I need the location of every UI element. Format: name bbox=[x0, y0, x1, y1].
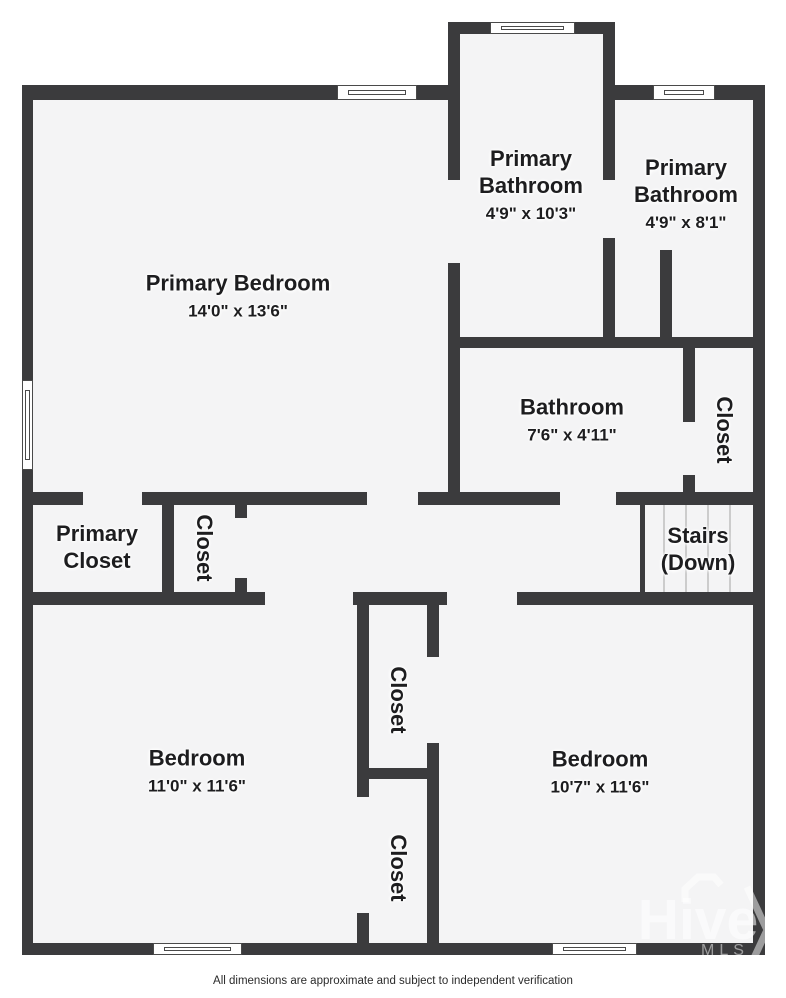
room-label-closet-middle-top: Closet bbox=[385, 666, 411, 733]
window-glass bbox=[664, 90, 704, 95]
room-dims: 14'0" x 13'6" bbox=[146, 300, 331, 321]
wall-segment bbox=[640, 505, 645, 592]
wall-segment bbox=[753, 85, 765, 955]
room-name: Primary Bathroom bbox=[466, 146, 596, 200]
window-symbol bbox=[153, 943, 242, 955]
room-name: Stairs (Down) bbox=[656, 523, 740, 577]
room-dims: 7'6" x 4'11" bbox=[520, 424, 624, 445]
wall-segment bbox=[22, 492, 83, 505]
disclaimer-text: All dimensions are approximate and subje… bbox=[0, 975, 786, 987]
watermark-sub-text: MLS bbox=[701, 942, 749, 959]
room-name: Primary Bathroom bbox=[621, 155, 751, 209]
wall-segment bbox=[22, 85, 33, 380]
wall-segment bbox=[418, 492, 560, 505]
room-label-bedroom-left: Bedroom 11'0" x 11'6" bbox=[148, 745, 246, 796]
room-label-closet-bathroom-side: Closet bbox=[711, 396, 737, 463]
room-label-closet-hallway: Closet bbox=[191, 514, 217, 581]
window-glass bbox=[501, 26, 564, 30]
room-dims: 10'7" x 11'6" bbox=[551, 776, 650, 797]
wall-segment bbox=[142, 492, 367, 505]
wall-segment bbox=[683, 348, 695, 422]
room-label-primary-bathroom-1: Primary Bathroom 4'9" x 10'3" bbox=[466, 146, 596, 224]
window-glass bbox=[348, 90, 406, 95]
wall-segment bbox=[353, 592, 447, 605]
wall-segment bbox=[22, 943, 153, 955]
wall-segment bbox=[448, 337, 765, 348]
room-label-bathroom: Bathroom 7'6" x 4'11" bbox=[520, 394, 624, 445]
wall-segment bbox=[616, 492, 765, 505]
room-name: Primary Closet bbox=[40, 521, 155, 575]
wall-segment bbox=[235, 578, 247, 592]
room-label-stairs: Stairs (Down) bbox=[656, 523, 740, 577]
wall-segment bbox=[448, 263, 460, 505]
room-name: Bedroom bbox=[551, 746, 650, 773]
window-symbol bbox=[490, 22, 575, 34]
wall-segment bbox=[427, 605, 439, 657]
window-symbol bbox=[653, 85, 715, 100]
room-dims: 11'0" x 11'6" bbox=[148, 775, 246, 796]
wall-segment bbox=[660, 250, 672, 348]
wall-segment bbox=[242, 943, 552, 955]
wall-segment bbox=[603, 22, 615, 180]
window-glass bbox=[164, 947, 231, 951]
window-symbol bbox=[337, 85, 417, 100]
room-label-primary-bedroom: Primary Bedroom 14'0" x 13'6" bbox=[146, 270, 331, 321]
wall-segment bbox=[22, 85, 337, 100]
room-name: Primary Bedroom bbox=[146, 270, 331, 297]
room-name: Bedroom bbox=[148, 745, 246, 772]
room-label-primary-closet: Primary Closet bbox=[40, 521, 155, 575]
wall-segment bbox=[603, 238, 615, 348]
wall-segment bbox=[22, 470, 33, 955]
hive-mls-watermark-logo: Hive MLS bbox=[615, 860, 786, 975]
floor-plan: Primary Bedroom 14'0" x 13'6" Primary Ba… bbox=[0, 0, 786, 998]
room-name: Bathroom bbox=[520, 394, 624, 421]
room-label-primary-bathroom-2: Primary Bathroom 4'9" x 8'1" bbox=[621, 155, 751, 233]
window-symbol bbox=[22, 380, 33, 470]
wall-segment bbox=[235, 505, 247, 518]
wall-segment bbox=[517, 592, 765, 605]
room-dims: 4'9" x 8'1" bbox=[621, 212, 751, 233]
wall-segment bbox=[357, 913, 369, 943]
room-label-closet-middle-bottom: Closet bbox=[385, 834, 411, 901]
wall-segment bbox=[162, 505, 174, 592]
wall-segment bbox=[22, 592, 265, 605]
wall-segment bbox=[448, 22, 460, 180]
room-dims: 4'9" x 10'3" bbox=[466, 203, 596, 224]
wall-segment bbox=[357, 768, 439, 779]
window-glass bbox=[25, 390, 30, 460]
room-label-bedroom-right: Bedroom 10'7" x 11'6" bbox=[551, 746, 650, 797]
